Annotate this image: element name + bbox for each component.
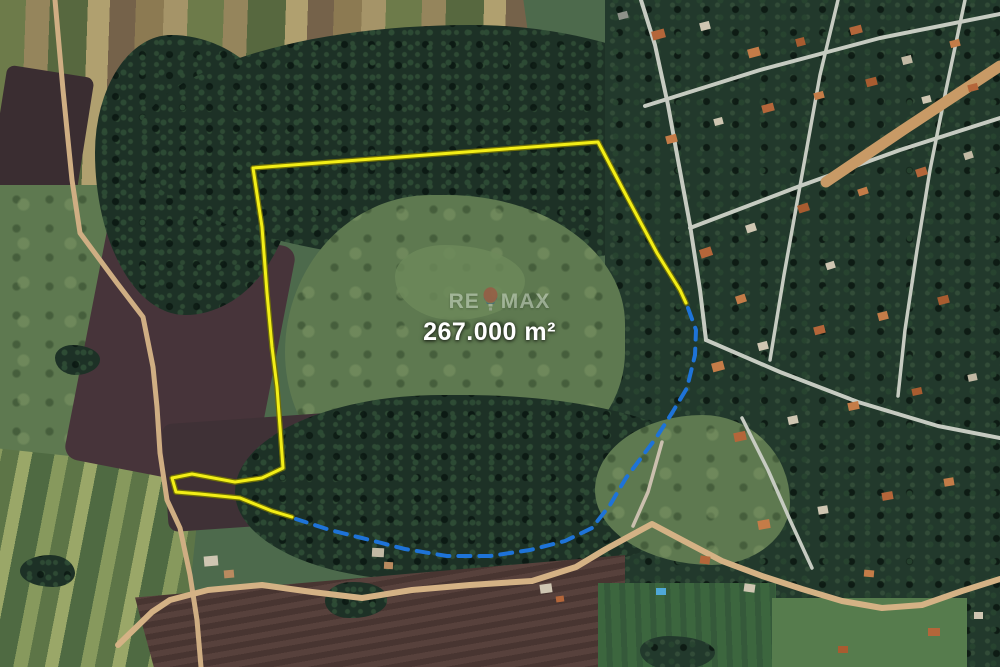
remax-watermark-re: RE — [449, 290, 480, 314]
remax-balloon-icon — [483, 287, 498, 313]
area-label: 267.000 m² — [412, 318, 567, 347]
satellite-map: RE MAX 267.000 m² — [0, 0, 1000, 667]
remax-watermark-max: MAX — [501, 290, 551, 314]
remax-watermark: RE MAX — [437, 266, 562, 314]
